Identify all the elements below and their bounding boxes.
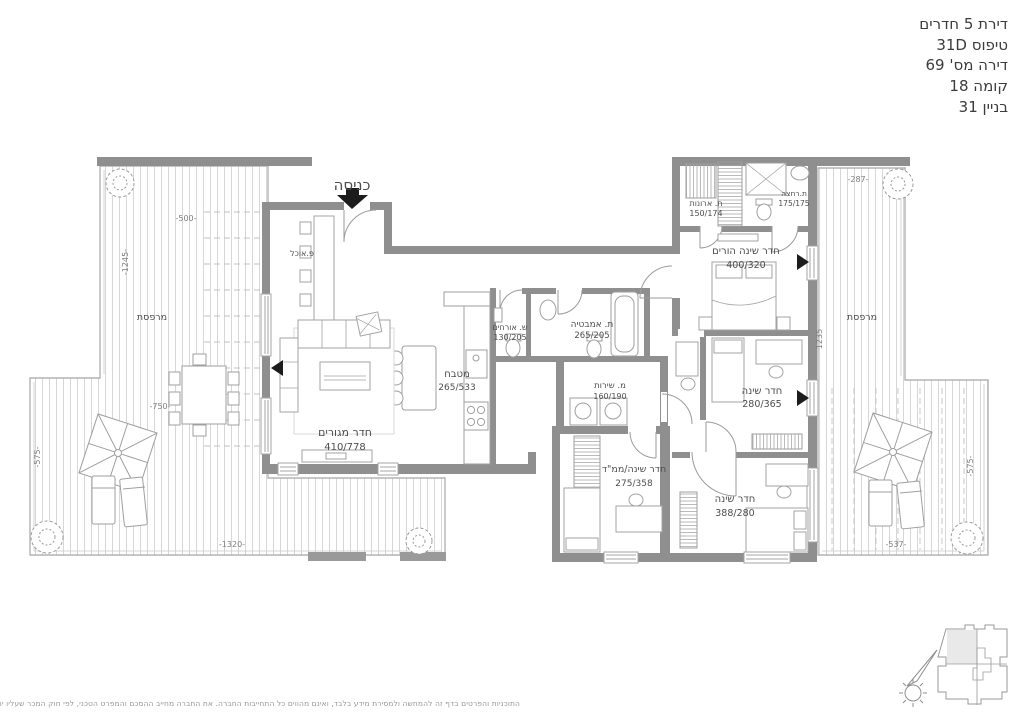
header-type-code: טיפוס 31D [919, 35, 1008, 56]
dim-1320: -1320- [219, 540, 245, 549]
disclaimer-text: התוכניות והפרטים בדף זה להמחשה ולמסירת מ… [0, 699, 520, 708]
terrace-left-label: מרפסת [137, 312, 167, 323]
bathroom-label: ת. אמבטיה [571, 320, 614, 330]
planter [308, 552, 366, 561]
header-floor: קומה 18 [919, 76, 1008, 97]
bathroom-size: 265/205 [574, 331, 609, 341]
dining-label: פ.אוכל [290, 249, 314, 258]
shower-room-size: 175/175 [778, 199, 809, 208]
kitchen-size: 265/533 [438, 383, 475, 393]
floorplan-sheet: דירת 5 חדרים טיפוס 31D דירה מס' 69 קומה … [0, 0, 1024, 724]
header-apartment-type: דירת 5 חדרים [919, 14, 1008, 35]
right-terrace [818, 168, 988, 555]
bedroom2-label: חדר שינה [742, 386, 783, 397]
dim-500: -500- [175, 214, 196, 223]
header-apartment-number: דירה מס' 69 [919, 55, 1008, 76]
header-building: בניין 31 [919, 97, 1008, 118]
master-bedroom-size: 400/320 [726, 260, 765, 271]
mamad-size: 275/358 [615, 479, 653, 489]
living-room-label: חדר מגורים [318, 426, 372, 439]
key-plan [938, 625, 1007, 705]
apartment-info-header: דירת 5 חדרים טיפוס 31D דירה מס' 69 קומה … [919, 14, 1008, 117]
guest-wc-label: ש. אורחים [492, 323, 527, 332]
dim-750: -750- [149, 402, 170, 411]
service-room-size: 160/190 [593, 392, 626, 401]
dim-537: -537- [885, 540, 906, 549]
closet-room-size: 150/174 [689, 209, 722, 218]
entrance-label: כניסה [334, 176, 371, 194]
bush-icon [406, 528, 432, 554]
mamad-label: חדר שינה/ממ"ד [602, 464, 666, 475]
bush-icon [31, 521, 63, 553]
bedroom2-size: 280/365 [742, 399, 781, 410]
bush-icon [951, 522, 983, 554]
shower-room-label: ת.רחצה [781, 189, 807, 198]
north-arrow-icon [899, 650, 937, 707]
service-room-label: מ. שירות [594, 381, 626, 391]
master-bedroom-label: חדר שינה הורים [712, 246, 780, 257]
dim-575-left: -575- [33, 446, 42, 467]
dim-287: -287- [847, 175, 868, 184]
floorplan-drawing: כניסה חדר מגורים 410/778 פ.אוכל מטבח 265… [0, 0, 1024, 724]
dim-1235: 1235 [815, 329, 824, 349]
bedroom3-size: 388/280 [715, 508, 754, 519]
kitchen-label: מטבח [444, 369, 470, 380]
closet-room-label: ת. ארונות [689, 199, 722, 208]
bush-icon [106, 169, 134, 197]
bush-icon [883, 169, 913, 199]
dim-1245: -1245- [121, 249, 130, 275]
guest-wc-size: 130/205 [493, 333, 526, 342]
living-room-size: 410/778 [324, 442, 366, 453]
dim-575-right: -575- [966, 455, 975, 476]
terrace-right-label: מרפסת [847, 312, 877, 323]
bedroom3-label: חדר שינה [715, 494, 756, 505]
